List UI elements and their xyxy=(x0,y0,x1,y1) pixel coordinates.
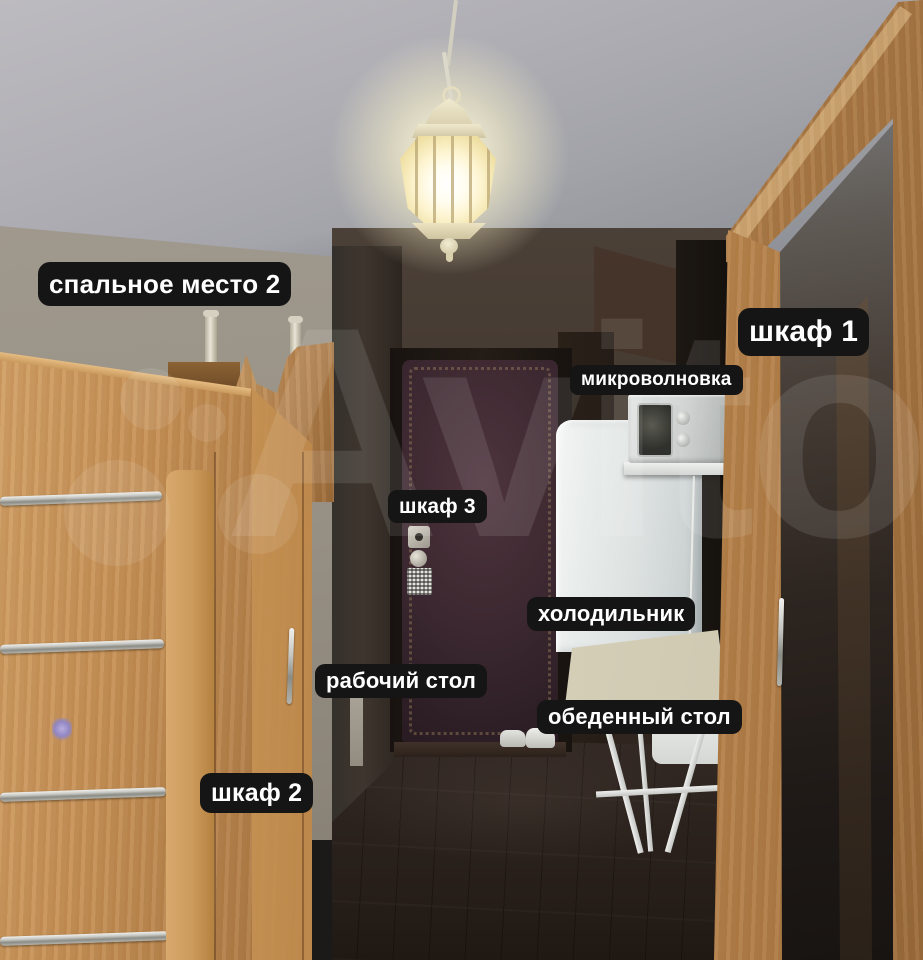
annotation-sleeping-place-2: спальное место 2 xyxy=(38,262,291,306)
annotation-dining-table: обеденный стол xyxy=(537,700,742,734)
wardrobe-2-stile xyxy=(166,470,214,960)
wardrobe-2-gapline xyxy=(302,452,304,960)
lamp-finial-tip xyxy=(446,252,453,262)
wardrobe-2-gapline xyxy=(214,452,216,960)
ceiling-lamp xyxy=(300,0,600,290)
annotation-wardrobe-2: шкаф 2 xyxy=(200,773,313,813)
lamp-body xyxy=(400,136,496,224)
floor xyxy=(332,736,745,960)
annotation-fridge: холодильник xyxy=(527,597,695,631)
microwave-knob xyxy=(676,411,690,425)
microwave-window xyxy=(637,403,673,457)
baseboard-highlight xyxy=(350,694,363,766)
door-keypad-sticker xyxy=(407,568,432,595)
door-knob xyxy=(410,550,427,567)
lamp-collar xyxy=(412,124,486,138)
sticker xyxy=(52,718,72,742)
room-photo: Avito спальное место 2 шкаф 1 микроволно… xyxy=(0,0,923,960)
annotation-work-desk: рабочий стол xyxy=(315,664,487,698)
microwave-oven xyxy=(628,394,740,463)
annotation-wardrobe-1: шкаф 1 xyxy=(738,308,869,356)
door-lock xyxy=(408,526,430,548)
annotation-wardrobe-3: шкаф 3 xyxy=(388,490,487,523)
microwave-knob xyxy=(676,433,690,447)
annotation-microwave: микроволновка xyxy=(570,365,743,395)
